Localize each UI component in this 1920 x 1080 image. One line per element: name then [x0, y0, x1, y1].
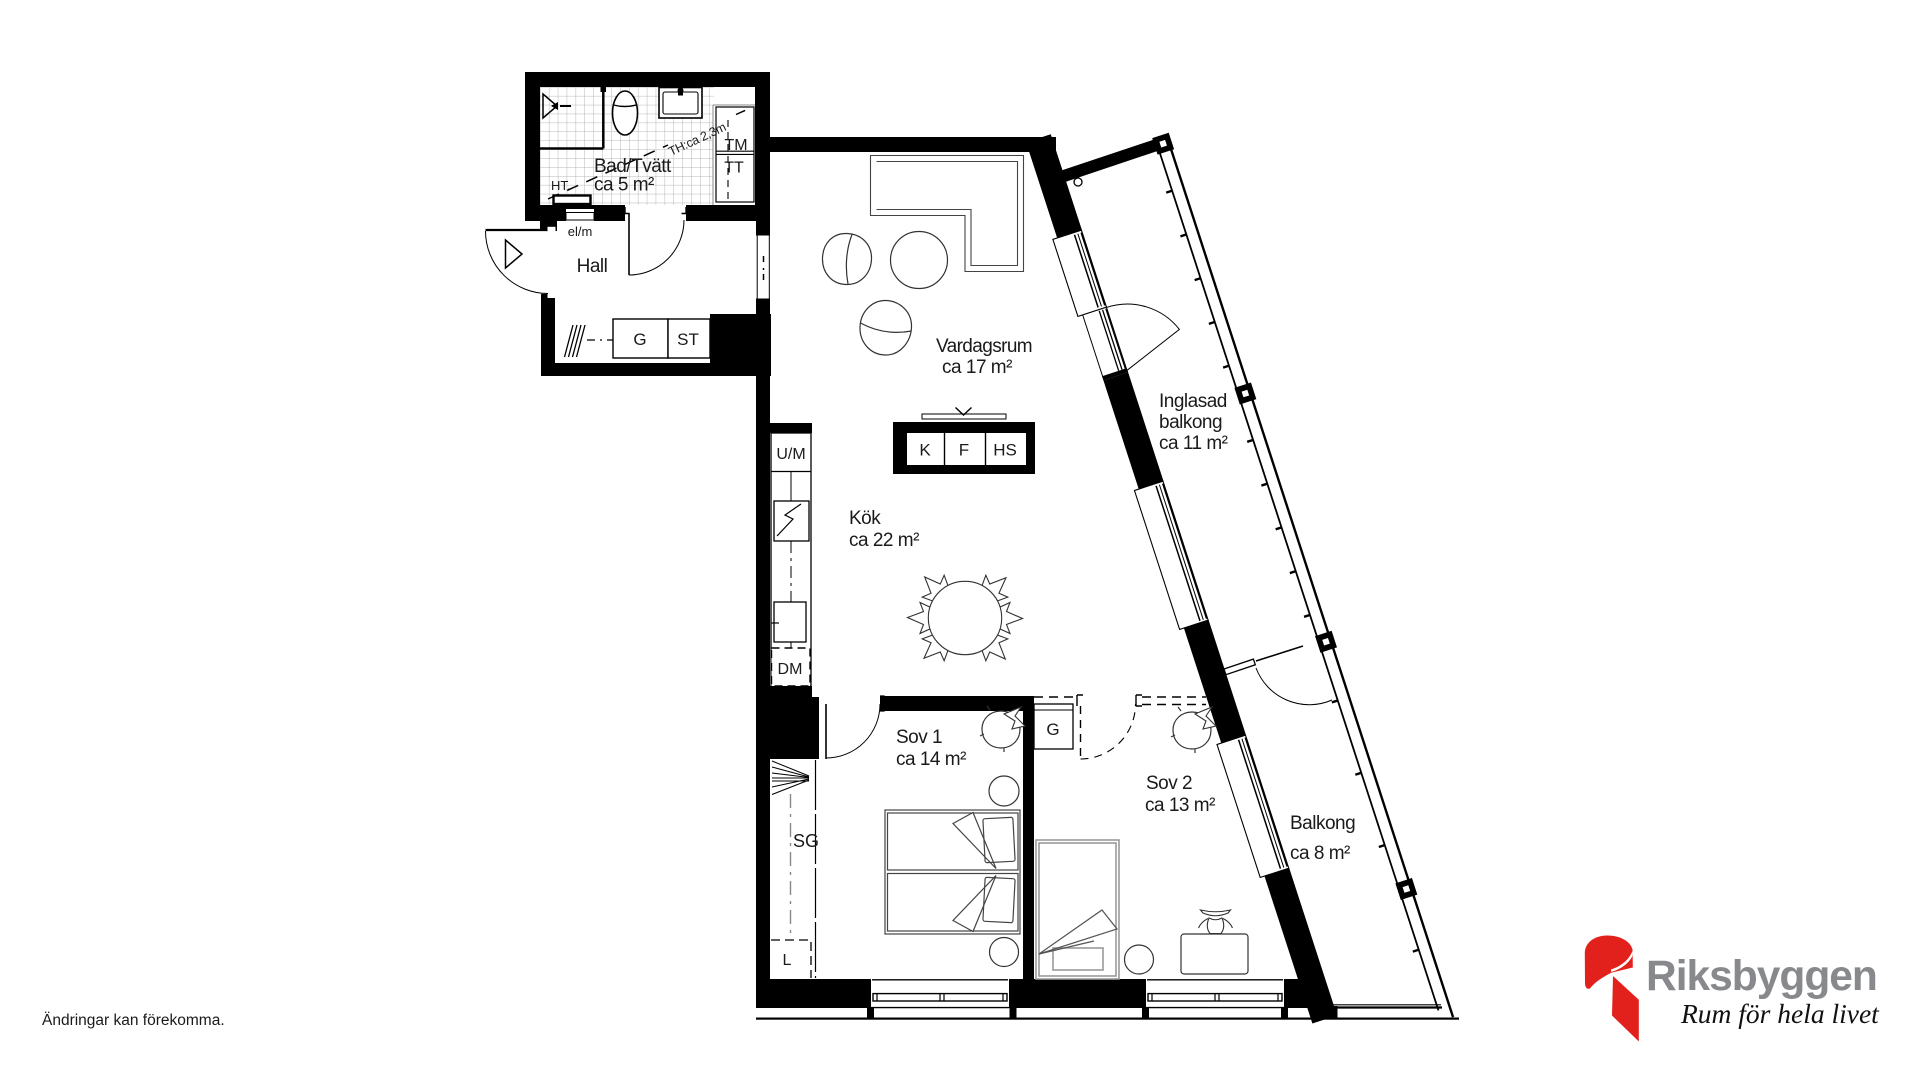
svg-text:ca 5 m²: ca 5 m²: [594, 175, 654, 196]
svg-text:ca 8 m²: ca 8 m²: [1290, 843, 1350, 864]
svg-text:Vardagsrum: Vardagsrum: [936, 336, 1032, 357]
svg-text:Sov 2: Sov 2: [1146, 773, 1192, 794]
svg-text:Rum för hela livet: Rum för hela livet: [1680, 998, 1880, 1029]
svg-text:ca 22 m²: ca 22 m²: [849, 530, 919, 551]
svg-text:Riksbyggen: Riksbyggen: [1646, 953, 1877, 1000]
svg-text:ca 13 m²: ca 13 m²: [1145, 795, 1215, 816]
svg-text:L: L: [783, 952, 792, 969]
svg-text:TT: TT: [724, 160, 744, 177]
svg-text:U/M: U/M: [776, 446, 805, 463]
svg-text:HS: HS: [993, 441, 1017, 460]
svg-text:Balkong: Balkong: [1290, 813, 1355, 834]
svg-text:Ändringar kan förekomma.: Ändringar kan förekomma.: [42, 1012, 225, 1029]
svg-text:Hall: Hall: [577, 256, 608, 277]
svg-text:balkong: balkong: [1159, 412, 1222, 433]
svg-text:Inglasad: Inglasad: [1159, 391, 1227, 412]
svg-text:ca 17 m²: ca 17 m²: [942, 357, 1012, 378]
svg-text:G: G: [633, 330, 646, 349]
svg-text:K: K: [919, 441, 931, 460]
svg-text:F: F: [959, 441, 969, 460]
svg-text:ST: ST: [677, 330, 699, 349]
svg-text:G: G: [1046, 720, 1059, 739]
svg-text:Kök: Kök: [849, 508, 881, 529]
svg-text:TM: TM: [724, 137, 747, 154]
svg-text:el/m: el/m: [568, 224, 593, 239]
svg-text:ca 14 m²: ca 14 m²: [896, 749, 966, 770]
svg-text:Sov 1: Sov 1: [896, 727, 942, 748]
svg-text:DM: DM: [778, 661, 803, 678]
svg-text:ca 11 m²: ca 11 m²: [1159, 433, 1228, 454]
svg-text:SG: SG: [793, 831, 819, 851]
